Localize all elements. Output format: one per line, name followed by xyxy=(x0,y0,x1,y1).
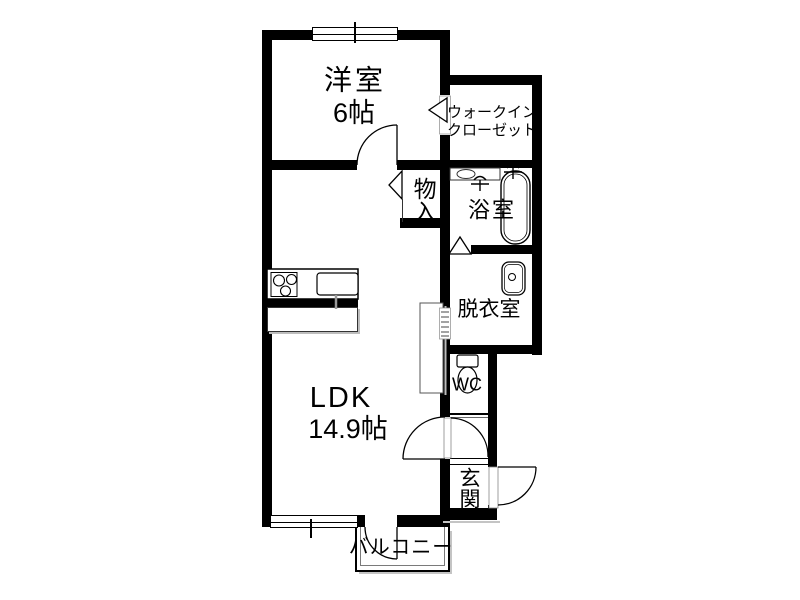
fixtures-layer xyxy=(0,0,800,600)
room-size-bedroom: 6帖 xyxy=(333,99,375,127)
room-label-balcony: バルコニー xyxy=(349,538,454,559)
room-label-closet: 物入 xyxy=(411,177,435,223)
bath-counter xyxy=(450,168,500,180)
room-label-entrance: 玄関 xyxy=(457,467,479,509)
stove-burners xyxy=(271,273,297,297)
room-label-wc: WC xyxy=(452,376,482,395)
washbasin xyxy=(502,262,525,295)
wall-center-vert-c xyxy=(440,339,450,417)
wall-datsui-bottom xyxy=(450,345,542,354)
kitchen-island xyxy=(267,307,358,332)
window-ldk-mullion xyxy=(310,519,312,538)
wall-center-vert-a xyxy=(440,30,450,95)
bath-counter-basin xyxy=(457,170,475,179)
window-bedroom-mullion xyxy=(354,22,356,43)
room-label-bedroom: 洋室 xyxy=(324,65,386,94)
wall-divider-a xyxy=(262,160,357,170)
room-label-bathroom: 浴室 xyxy=(468,198,516,221)
shower-faucet-icon xyxy=(471,177,489,192)
entrance-door xyxy=(489,467,536,508)
wall-wc-right-a xyxy=(488,354,497,467)
wall-bath-datsui xyxy=(471,245,532,254)
wall-wic-top xyxy=(448,75,542,85)
kitchen-sink xyxy=(317,273,358,295)
wall-bottom-b xyxy=(397,515,443,527)
dressing-room-folding-door xyxy=(440,308,451,339)
wall-left xyxy=(262,30,272,527)
bathroom-door xyxy=(449,237,471,254)
wc-hall-threshold-1 xyxy=(450,413,488,415)
window-ldk-bottom xyxy=(270,515,358,528)
kitchen-counter-band xyxy=(267,299,358,307)
genkan-step-line-2 xyxy=(450,464,497,465)
wall-top-a xyxy=(262,30,313,40)
room-label-dressing: 脱衣室 xyxy=(458,299,521,321)
room-label-wic-line2: クローゼット xyxy=(447,123,537,139)
wall-wic-bath xyxy=(450,160,532,168)
bedroom-door xyxy=(357,125,397,165)
wall-bottom-a xyxy=(357,515,365,527)
ldk-hall-door xyxy=(403,417,445,459)
room-label-ldk: LDK xyxy=(310,383,372,413)
wc-hall-threshold-2 xyxy=(450,417,488,418)
hall-genkan-door xyxy=(444,418,488,458)
wall-divider-b xyxy=(397,160,440,170)
genkan-step-line-1 xyxy=(450,458,488,459)
floor-plan: 洋室 6帖 ウォークイン クローゼット 物入 浴室 脱衣室 LDK 14.9帖 … xyxy=(0,0,800,600)
room-size-ldk: 14.9帖 xyxy=(308,415,388,443)
wall-genkan-bottom xyxy=(440,508,497,520)
room-label-wic-line1: ウォークイン xyxy=(447,105,537,121)
closet-door xyxy=(389,171,403,222)
genkan-shadow xyxy=(443,521,500,523)
